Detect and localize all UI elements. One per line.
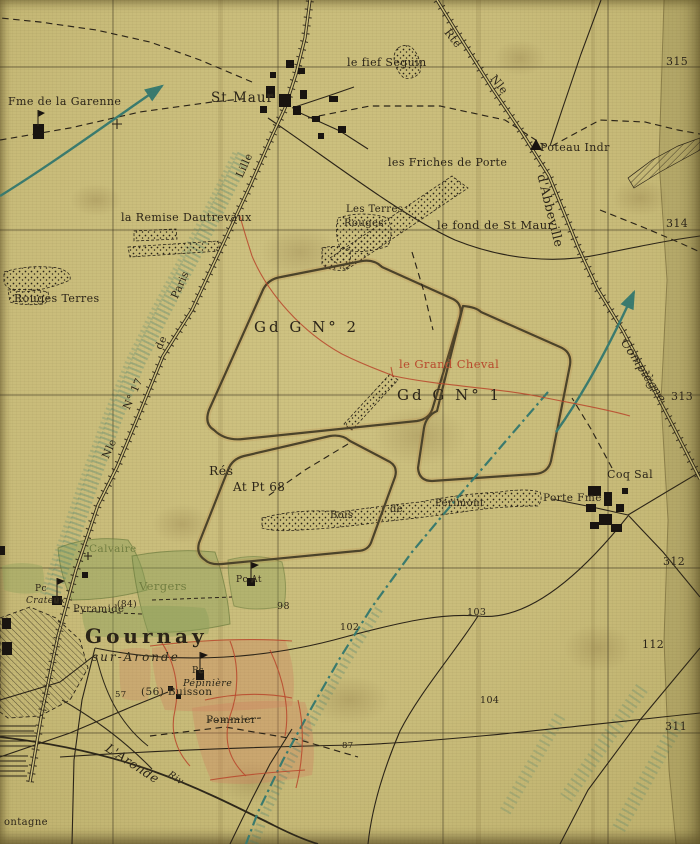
poteau-indicateur-symbol xyxy=(530,139,542,150)
teal-arrow-northwest xyxy=(0,86,162,196)
map-canvas: Fme de la GarenneSt Maurle fief SeguinRt… xyxy=(0,0,700,844)
torn-paper-edge xyxy=(659,0,700,844)
map-artwork xyxy=(0,0,700,844)
